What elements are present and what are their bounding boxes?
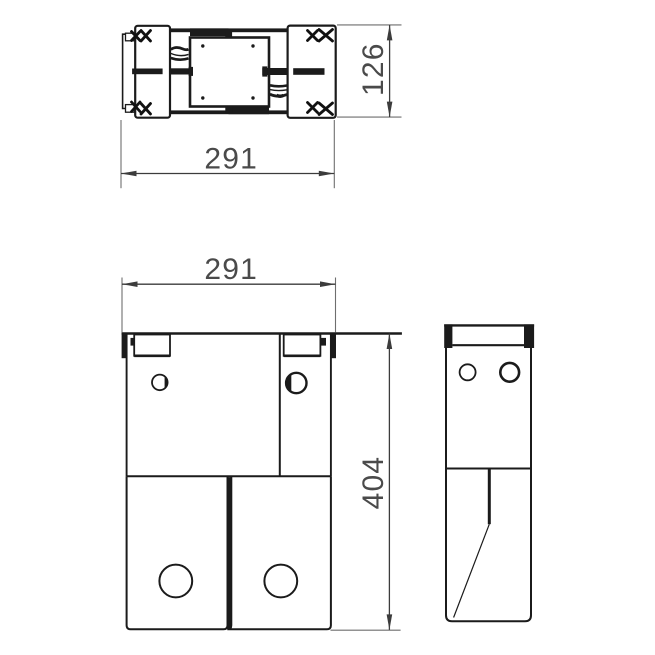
svg-text:291: 291 [204,253,258,286]
svg-text:404: 404 [357,456,390,510]
svg-text:126: 126 [357,42,390,96]
svg-text:291: 291 [204,143,258,176]
